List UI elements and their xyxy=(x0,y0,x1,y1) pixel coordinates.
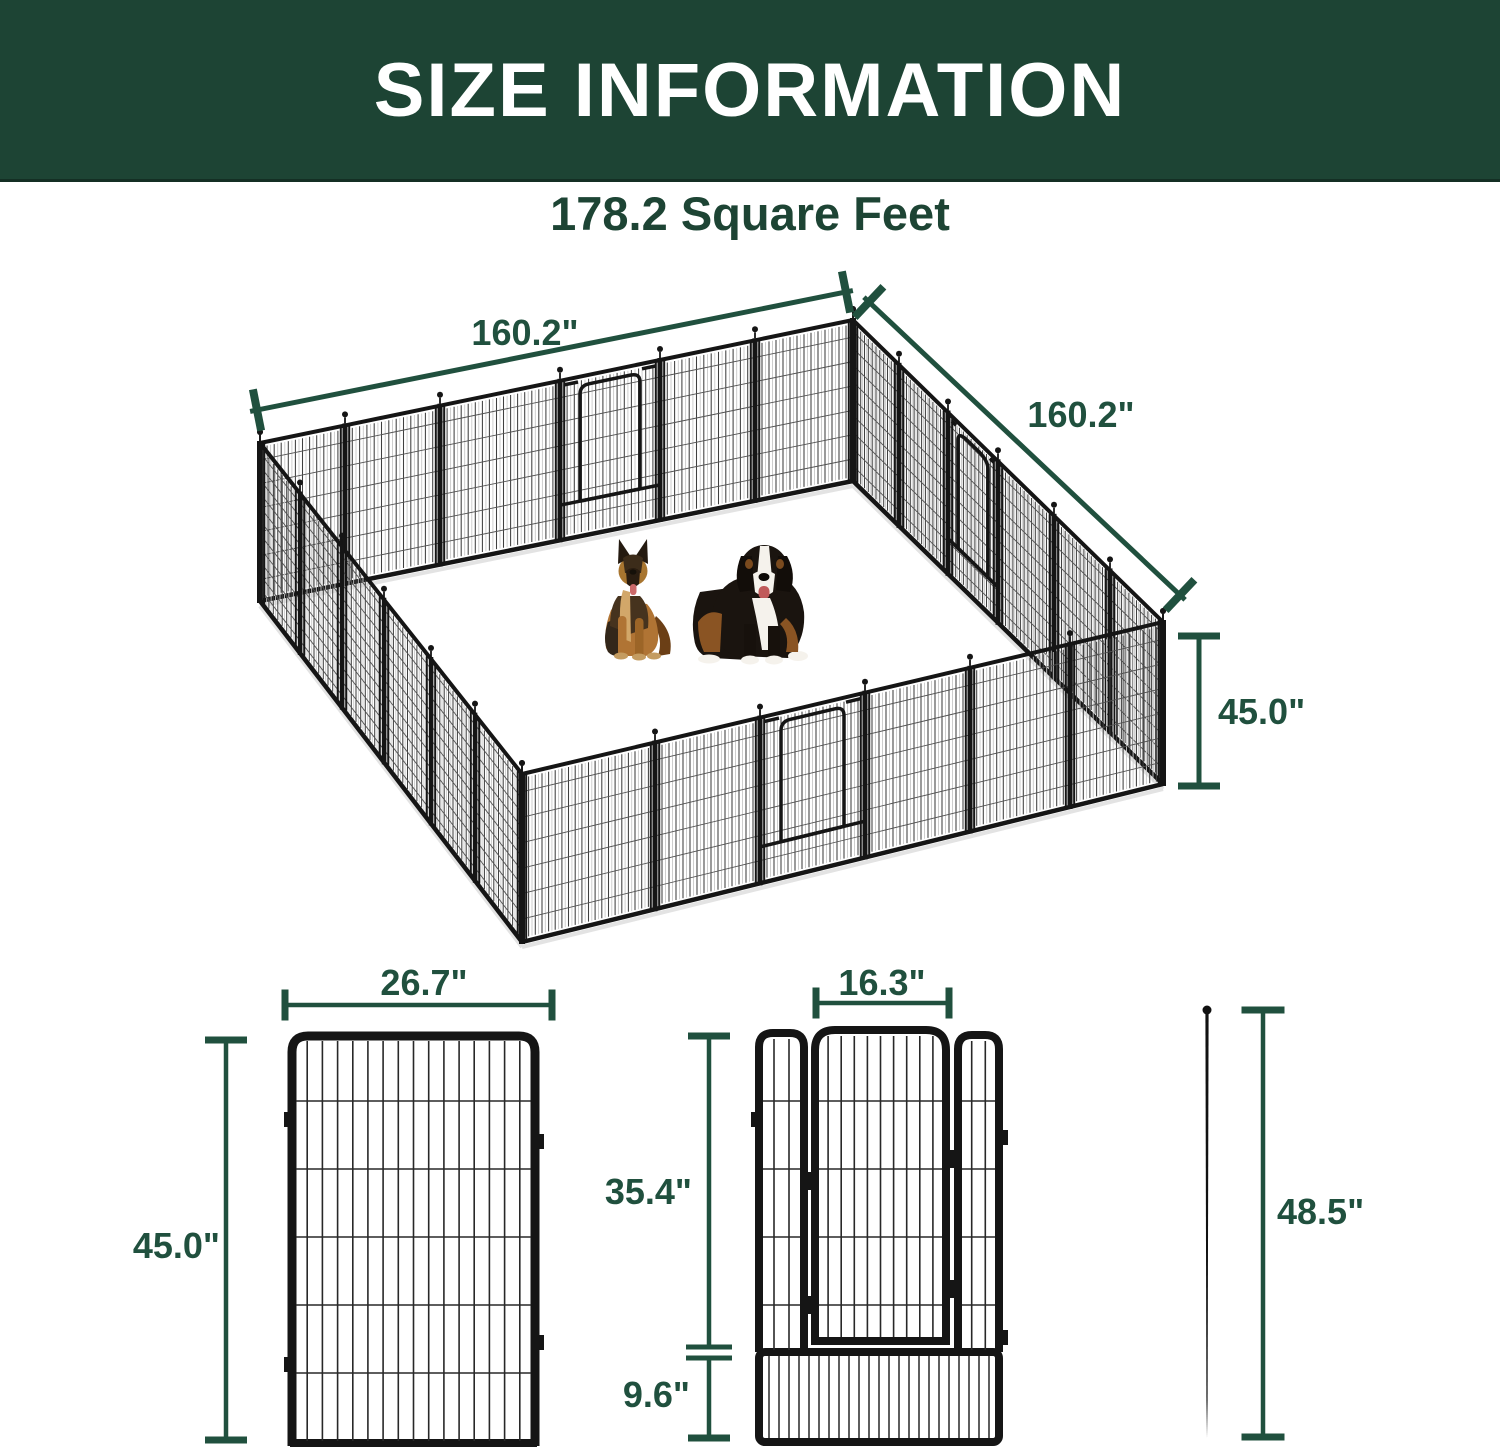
svg-text:160.2": 160.2" xyxy=(1027,394,1134,435)
svg-text:48.5": 48.5" xyxy=(1277,1191,1364,1232)
svg-text:9.6": 9.6" xyxy=(623,1374,690,1415)
svg-text:16.3": 16.3" xyxy=(838,962,925,1003)
svg-text:26.7": 26.7" xyxy=(380,962,467,1003)
svg-text:35.4": 35.4" xyxy=(605,1171,692,1212)
svg-text:45.0": 45.0" xyxy=(1218,691,1305,732)
svg-text:160.2": 160.2" xyxy=(471,312,578,353)
svg-text:45.0": 45.0" xyxy=(133,1225,220,1266)
